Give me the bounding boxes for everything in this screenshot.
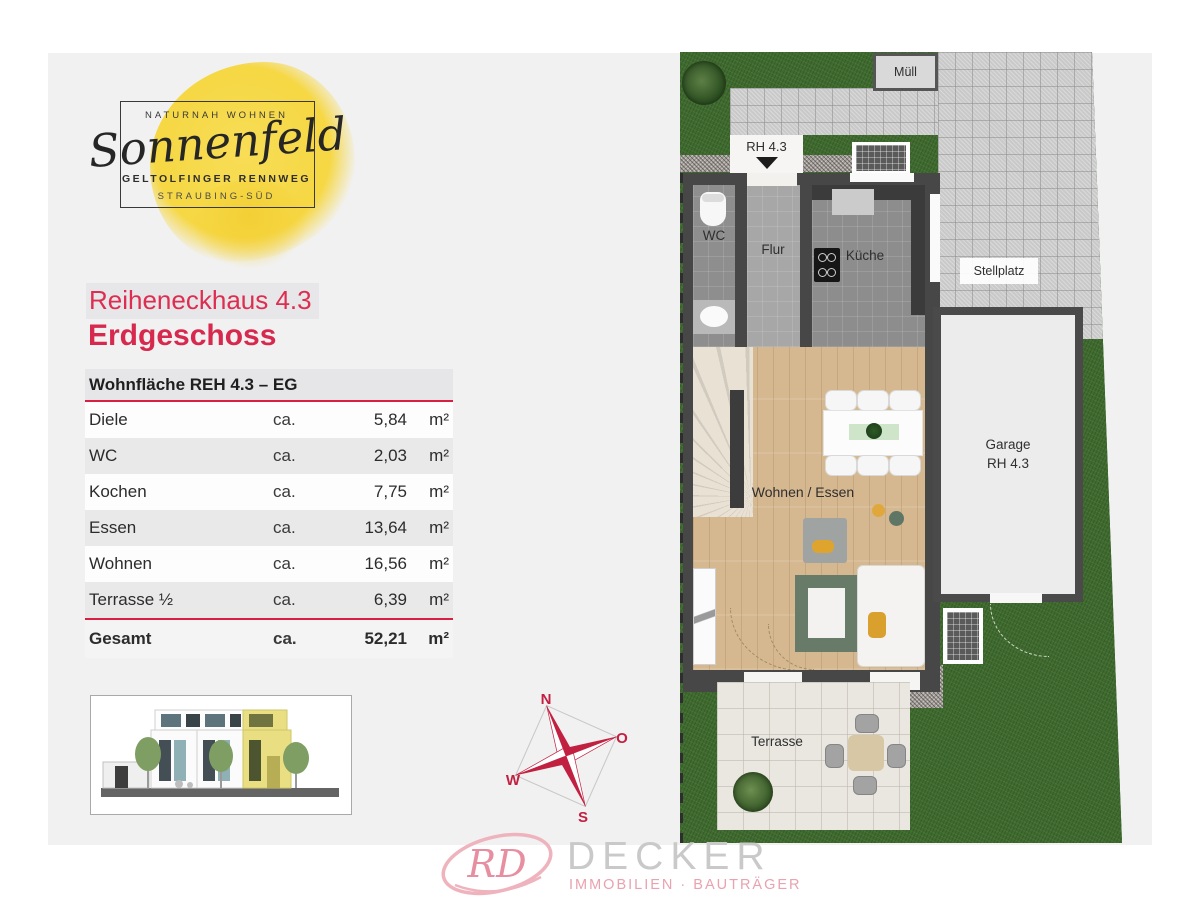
total-ca: ca. — [271, 629, 323, 649]
entrance-door — [747, 173, 797, 186]
page-title: Erdgeschoss — [88, 319, 276, 353]
dining-chair — [857, 455, 889, 476]
armchair — [803, 518, 847, 563]
walkway-pavement — [730, 88, 940, 135]
armchair-pillow — [812, 540, 834, 553]
garage-door-sill — [990, 593, 1042, 603]
row-value: 5,84 — [323, 410, 409, 430]
terrace-chair — [825, 744, 844, 768]
area-table-header: Wohnfläche REH 4.3 – EG — [85, 369, 453, 402]
elevation-drawing — [91, 696, 349, 812]
table-row: Wohnenca.16,56m² — [85, 546, 453, 582]
row-ca: ca. — [271, 446, 323, 466]
row-unit: m² — [409, 518, 453, 538]
muell-enclosure: Müll — [873, 53, 938, 91]
monogram-text: RD — [466, 842, 526, 886]
compass-w-label: W — [506, 772, 521, 789]
entrance-label: RH 4.3 — [730, 139, 803, 154]
table-row: Essenca.13,64m² — [85, 510, 453, 546]
compass-s-label: S — [578, 809, 588, 826]
entrance-arrow-icon — [756, 157, 778, 169]
dining-chair — [825, 390, 857, 411]
row-unit: m² — [409, 482, 453, 502]
total-value: 52,21 — [323, 629, 409, 649]
side-window — [930, 194, 940, 282]
kitchen-counter-side — [911, 185, 925, 315]
terrace-chair — [853, 776, 877, 795]
row-label: Essen — [85, 518, 271, 538]
wc-sink — [700, 306, 728, 327]
row-ca: ca. — [271, 410, 323, 430]
row-unit: m² — [409, 446, 453, 466]
kitchen-cabinet — [832, 189, 874, 215]
row-label: Kochen — [85, 482, 271, 502]
wohnen-essen-label: Wohnen / Essen — [718, 484, 888, 500]
terrace-chair — [887, 744, 906, 768]
row-value: 7,75 — [323, 482, 409, 502]
table-row: Dieleca.5,84m² — [85, 402, 453, 438]
property-boundary-line — [680, 173, 683, 843]
area-table: Wohnfläche REH 4.3 – EG Dieleca.5,84m² W… — [85, 369, 453, 658]
row-label: Wohnen — [85, 554, 271, 574]
burner — [827, 268, 836, 277]
row-ca: ca. — [271, 590, 323, 610]
row-value: 6,39 — [323, 590, 409, 610]
wc-room-label: WC — [693, 228, 735, 243]
burner — [818, 253, 827, 262]
rd-monogram-icon: RD — [437, 831, 557, 899]
muell-label: Müll — [876, 56, 935, 88]
garage-label-line2: RH 4.3 — [933, 454, 1083, 473]
compass-o-label: O — [616, 730, 628, 747]
footer-brand: RD DECKER IMMOBILIEN · BAUTRÄGER — [437, 831, 802, 899]
gravel-strip — [680, 155, 732, 172]
unit-subtitle: Reiheneckhaus 4.3 — [86, 283, 319, 319]
row-unit: m² — [409, 554, 453, 574]
flur-label: Flur — [740, 242, 806, 257]
light-well-grate — [856, 145, 906, 171]
dining-table — [823, 410, 923, 456]
compass-n-label: N — [541, 691, 552, 708]
terrasse-label: Terrasse — [722, 734, 832, 749]
gravel-strip — [800, 155, 854, 172]
row-unit: m² — [409, 590, 453, 610]
garage-label: Garage RH 4.3 — [933, 435, 1083, 473]
area-table-body: Dieleca.5,84m² WCca.2,03m² Kochenca.7,75… — [85, 402, 453, 618]
terrace-table — [848, 735, 884, 771]
dining-chair — [889, 455, 921, 476]
table-row: Terrasse ½ca.6,39m² — [85, 582, 453, 618]
dining-chair — [825, 455, 857, 476]
toilet-tank — [702, 194, 724, 202]
total-label: Gesamt — [85, 629, 271, 649]
row-value: 16,56 — [323, 554, 409, 574]
wc-vanity — [693, 300, 735, 334]
sofa — [857, 565, 925, 667]
terrace-bush — [733, 772, 773, 812]
company-tagline: IMMOBILIEN · BAUTRÄGER — [569, 877, 802, 893]
light-well — [943, 608, 983, 664]
light-well-grate — [947, 612, 979, 660]
table-plant — [866, 423, 882, 439]
terrace-chair — [855, 714, 879, 733]
table-total-row: Gesamtca.52,21m² — [85, 618, 453, 658]
table-row: Kochenca.7,75m² — [85, 474, 453, 510]
row-label: Terrasse ½ — [85, 590, 271, 610]
sofa-pillow — [868, 612, 886, 638]
logo-city-line: STRAUBING-SÜD — [120, 191, 313, 202]
footer-text: DECKER IMMOBILIEN · BAUTRÄGER — [567, 839, 802, 893]
row-ca: ca. — [271, 482, 323, 502]
floor-plan: Müll RH 4.3 WC Flur — [680, 52, 1130, 843]
compass-rose: N O W S — [496, 686, 636, 826]
row-ca: ca. — [271, 554, 323, 574]
flur-floor — [747, 185, 800, 347]
row-value: 2,03 — [323, 446, 409, 466]
light-well — [852, 142, 910, 174]
total-unit: m² — [409, 629, 453, 649]
flyer-page: NATURNAH WOHNEN Sonnenfeld GELTOLFINGER … — [0, 0, 1200, 901]
row-label: WC — [85, 446, 271, 466]
burner — [818, 268, 827, 277]
stellplatz-label: Stellplatz — [960, 258, 1038, 284]
side-table-yellow — [872, 504, 885, 517]
company-name: DECKER — [567, 839, 802, 875]
side-table-green — [889, 511, 904, 526]
garage-label-line1: Garage — [933, 435, 1083, 454]
table-row: WCca.2,03m² — [85, 438, 453, 474]
tree — [682, 61, 726, 105]
building-elevation-image — [90, 695, 352, 815]
logo-street-line: GELTOLFINGER RENNWEG — [120, 173, 313, 185]
toilet — [700, 192, 726, 226]
row-ca: ca. — [271, 518, 323, 538]
row-unit: m² — [409, 410, 453, 430]
dining-chair — [857, 390, 889, 411]
row-value: 13,64 — [323, 518, 409, 538]
dining-chair — [889, 390, 921, 411]
kitchen-window — [850, 173, 914, 182]
tv-sideboard — [693, 568, 716, 665]
row-label: Diele — [85, 410, 271, 430]
kueche-label: Küche — [828, 248, 902, 263]
